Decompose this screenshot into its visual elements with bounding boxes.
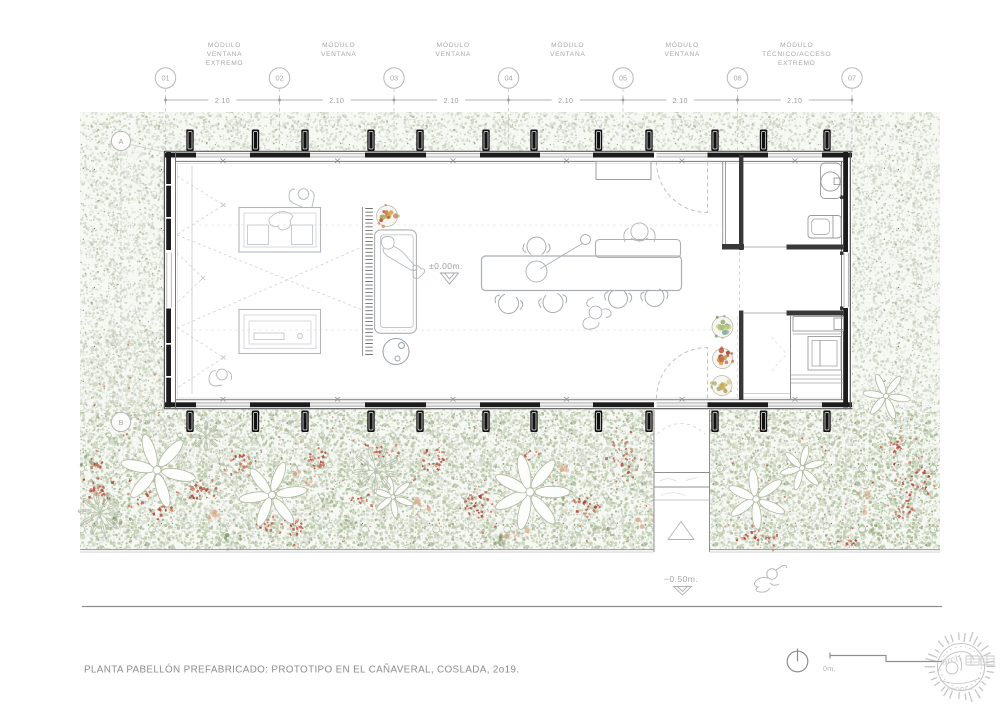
svg-text:2.10: 2.10	[329, 98, 344, 105]
svg-text:MÓDULO: MÓDULO	[322, 40, 355, 49]
svg-text:MÓDULO: MÓDULO	[780, 40, 813, 49]
svg-text:2.10: 2.10	[673, 98, 688, 105]
svg-text:MÓDULO: MÓDULO	[666, 40, 699, 49]
svg-text:0m.: 0m.	[823, 664, 836, 673]
svg-text:01: 01	[161, 74, 169, 83]
svg-text:05: 05	[619, 74, 627, 83]
svg-text:VENTANA: VENTANA	[664, 51, 700, 58]
svg-text:www.iarch.cn: www.iarch.cn	[947, 686, 974, 691]
svg-text:TÉCNICO/ACCESO: TÉCNICO/ACCESO	[762, 49, 831, 58]
svg-text:02: 02	[275, 74, 283, 83]
svg-text:MÓDULO: MÓDULO	[437, 40, 470, 49]
svg-text:2.10: 2.10	[558, 98, 573, 105]
svg-text:−0.50m.: −0.50m.	[664, 574, 698, 584]
svg-text:EXTREMO: EXTREMO	[206, 60, 244, 67]
svg-text:VENTANA: VENTANA	[321, 51, 357, 58]
svg-text:±0.00m.: ±0.00m.	[429, 261, 463, 271]
svg-text:EXTREMO: EXTREMO	[778, 60, 816, 67]
svg-text:A: A	[119, 137, 124, 146]
svg-text:VENTANA: VENTANA	[435, 51, 471, 58]
svg-text:06: 06	[733, 74, 741, 83]
svg-text:MÓDULO: MÓDULO	[551, 40, 584, 49]
svg-text:MÓDULO: MÓDULO	[208, 40, 241, 49]
svg-text:B: B	[119, 418, 124, 427]
svg-text:2.10: 2.10	[215, 98, 230, 105]
svg-text:VENTANA: VENTANA	[207, 51, 243, 58]
svg-text:07: 07	[848, 74, 856, 83]
svg-text:PLANTA PABELLÓN PREFABRICADO:: PLANTA PABELLÓN PREFABRICADO: PROTOTIPO …	[84, 665, 519, 676]
svg-text:04: 04	[504, 74, 512, 83]
svg-text:2.10: 2.10	[787, 98, 802, 105]
svg-text:VENTANA: VENTANA	[550, 51, 586, 58]
svg-text:03: 03	[390, 74, 398, 83]
svg-text:2.10: 2.10	[444, 98, 459, 105]
